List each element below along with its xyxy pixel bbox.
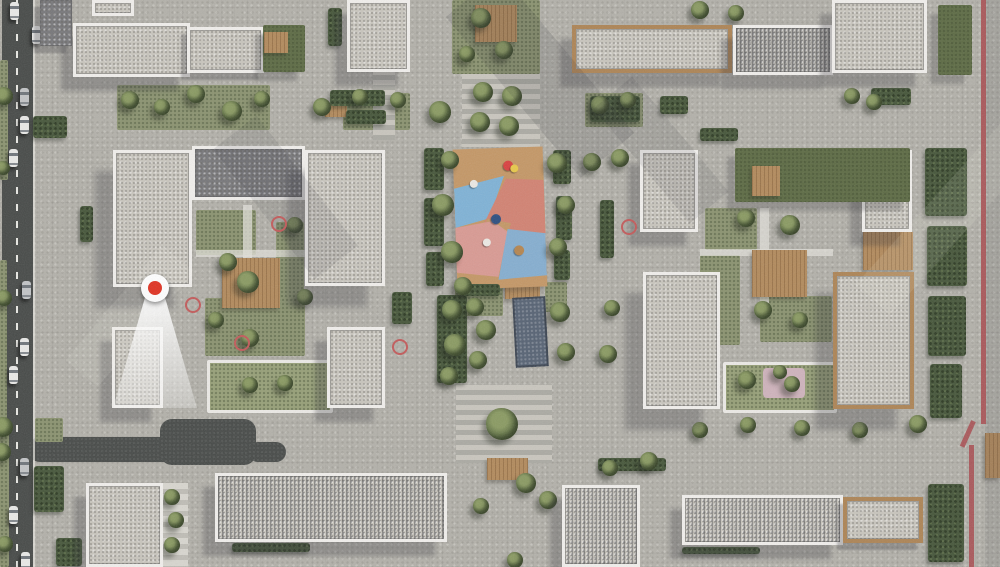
- tree: [773, 365, 787, 379]
- tree: [852, 422, 868, 438]
- striped-paving: [462, 74, 540, 147]
- playground-surface: [453, 146, 548, 289]
- building-roof: [733, 25, 833, 75]
- car: [9, 366, 18, 384]
- tree: [550, 302, 570, 322]
- tree: [557, 343, 575, 361]
- tree: [444, 334, 466, 356]
- building-roof: [187, 27, 264, 73]
- tree: [466, 298, 484, 316]
- hedge-row: [930, 364, 962, 418]
- building-roof: [113, 150, 192, 287]
- hedge-row: [392, 292, 412, 324]
- building-roof: [40, 0, 72, 46]
- tree: [604, 300, 620, 316]
- tree: [219, 253, 237, 271]
- ground-ring-mark: [185, 297, 201, 313]
- hedge-row: [928, 484, 964, 562]
- tree: [313, 98, 331, 116]
- hedge-row: [660, 96, 688, 114]
- wood-deck: [985, 433, 1000, 478]
- play-equipment: [483, 238, 491, 246]
- garden-court: [207, 360, 333, 413]
- water-feature: [512, 296, 549, 368]
- tree: [441, 241, 463, 263]
- tree: [473, 82, 493, 102]
- tree: [620, 92, 636, 108]
- tree: [738, 371, 756, 389]
- site-boundary-line: [960, 420, 975, 447]
- tree: [164, 489, 180, 505]
- building-roof: [643, 272, 720, 409]
- tree: [780, 215, 800, 235]
- hedge-row: [33, 116, 67, 138]
- tree: [476, 320, 496, 340]
- building-roof: [572, 25, 732, 73]
- hedge-row: [34, 466, 64, 512]
- ground-ring-mark: [271, 216, 287, 232]
- tree: [591, 96, 609, 114]
- wood-deck: [752, 250, 807, 297]
- tree: [754, 301, 772, 319]
- tree: [792, 312, 808, 328]
- access-road: [248, 442, 286, 462]
- car: [20, 88, 29, 106]
- hedge-row: [925, 148, 967, 216]
- hedge-row: [232, 543, 310, 552]
- site-boundary-line: [969, 445, 974, 567]
- play-equipment: [514, 245, 524, 255]
- play-equipment: [491, 214, 501, 224]
- tree: [740, 417, 756, 433]
- street-lane-divider: [16, 0, 18, 567]
- building-roof: [305, 150, 385, 286]
- building-roof: [843, 497, 923, 543]
- tree: [237, 271, 259, 293]
- hedge-row: [328, 8, 342, 46]
- tree: [516, 473, 536, 493]
- tree: [473, 498, 489, 514]
- tree: [459, 46, 475, 62]
- hedge-row: [682, 547, 760, 554]
- tree: [440, 367, 458, 385]
- tree: [507, 552, 523, 567]
- building-roof: [73, 23, 190, 77]
- tree: [454, 277, 472, 295]
- tree: [168, 512, 184, 528]
- tree: [611, 149, 629, 167]
- tree: [277, 375, 293, 391]
- tree: [909, 415, 927, 433]
- tree: [486, 408, 518, 440]
- building-roof: [92, 0, 134, 16]
- tree: [539, 491, 557, 509]
- tree: [222, 101, 242, 121]
- tree: [502, 86, 522, 106]
- tree: [692, 422, 708, 438]
- hedge-row: [927, 226, 967, 286]
- car: [21, 552, 30, 567]
- building-roof: [215, 473, 447, 542]
- tree: [470, 112, 490, 132]
- tree: [640, 452, 658, 470]
- car: [10, 2, 19, 20]
- tree: [208, 312, 224, 328]
- play-equipment: [510, 164, 518, 172]
- tree: [844, 88, 860, 104]
- shadow-band: [985, 0, 1000, 567]
- hedge-row: [56, 538, 82, 566]
- building-roof: [640, 150, 698, 232]
- tree: [728, 5, 744, 21]
- building-roof: [682, 495, 843, 545]
- tree: [297, 289, 313, 305]
- car: [20, 458, 29, 476]
- tree: [432, 194, 454, 216]
- tree: [254, 91, 270, 107]
- roof-garden: [938, 5, 972, 75]
- car: [20, 338, 29, 356]
- building-roof: [192, 146, 305, 200]
- building-roof: [833, 272, 914, 409]
- tree: [691, 1, 709, 19]
- tree: [442, 300, 462, 320]
- tree: [583, 153, 601, 171]
- tree: [242, 377, 258, 393]
- hedge-row: [928, 296, 966, 356]
- tree: [602, 460, 618, 476]
- access-road: [160, 419, 256, 465]
- ground-ring-mark: [392, 339, 408, 355]
- location-marker[interactable]: [141, 274, 169, 302]
- tree: [866, 94, 882, 110]
- building-roof: [832, 0, 927, 73]
- tree: [557, 196, 575, 214]
- tree: [287, 217, 303, 233]
- building-roof: [562, 485, 640, 567]
- car: [9, 506, 18, 524]
- car: [20, 116, 29, 134]
- hedge-row: [80, 206, 93, 242]
- tree: [599, 345, 617, 363]
- tree: [495, 41, 513, 59]
- ground-ring-mark: [234, 335, 250, 351]
- tree: [441, 151, 459, 169]
- lawn-area: [0, 260, 7, 420]
- tree: [187, 85, 205, 103]
- building-roof: [327, 327, 385, 408]
- ground-ring-mark: [621, 219, 637, 235]
- car: [22, 281, 31, 299]
- hedge-row: [700, 128, 738, 141]
- hedge-row: [346, 110, 386, 124]
- tree: [164, 537, 180, 553]
- site-boundary-line: [981, 0, 986, 424]
- tree: [469, 351, 487, 369]
- tree: [547, 153, 567, 173]
- tree: [794, 420, 810, 436]
- car: [9, 149, 18, 167]
- roof-terrace-deck: [752, 166, 780, 196]
- roof-terrace-deck: [264, 32, 288, 53]
- building-roof: [86, 483, 163, 567]
- tree: [784, 376, 800, 392]
- screenshot-frame: [0, 0, 1000, 567]
- tree: [154, 99, 170, 115]
- lawn-area: [35, 418, 63, 442]
- hedge-row: [424, 148, 444, 190]
- tree: [390, 92, 406, 108]
- hedge-row: [600, 200, 614, 258]
- tree: [549, 238, 567, 256]
- tree: [352, 89, 368, 105]
- tree: [121, 91, 139, 109]
- tree: [737, 209, 755, 227]
- wood-deck: [863, 232, 913, 270]
- tree: [471, 8, 491, 28]
- building-roof: [347, 0, 410, 72]
- tree: [429, 101, 451, 123]
- tree: [499, 116, 519, 136]
